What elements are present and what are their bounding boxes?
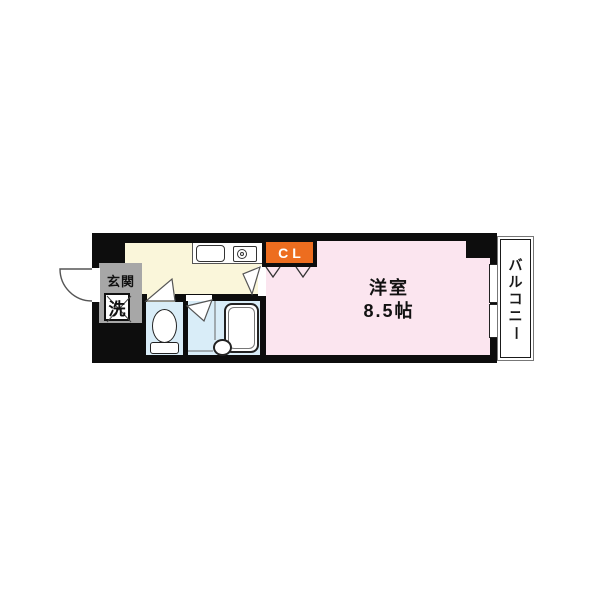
entrance-label: 玄関 bbox=[100, 271, 142, 290]
western-room-label: 洋室 8.5帖 bbox=[299, 277, 479, 323]
room-doorway bbox=[258, 266, 266, 296]
drain-icon bbox=[213, 339, 232, 356]
balcony-area: バルコニー bbox=[500, 239, 531, 358]
stove-burner-icon bbox=[240, 252, 244, 256]
room-name: 洋室 bbox=[299, 277, 479, 300]
entrance-doorway bbox=[91, 268, 100, 302]
floorplan: CL バルコニー 玄関 洗 洋室 8.5帖 bbox=[0, 0, 600, 600]
toilet-icon bbox=[152, 309, 177, 343]
bathtub-icon bbox=[228, 307, 255, 349]
wall-notch bbox=[466, 241, 490, 258]
room-size: 8.5帖 bbox=[299, 300, 479, 323]
entrance-door-icon bbox=[60, 269, 92, 301]
toilet-icon bbox=[150, 342, 179, 354]
laundry-label: 洗 bbox=[109, 295, 126, 320]
toilet-doorway bbox=[147, 294, 175, 302]
sink-icon bbox=[196, 245, 225, 262]
washing-machine-icon: 洗 bbox=[104, 293, 130, 321]
bathroom-doorway bbox=[186, 295, 212, 301]
closet-box: CL bbox=[266, 242, 313, 263]
closet-label: CL bbox=[278, 245, 305, 261]
balcony-label: バルコニー bbox=[509, 258, 523, 340]
